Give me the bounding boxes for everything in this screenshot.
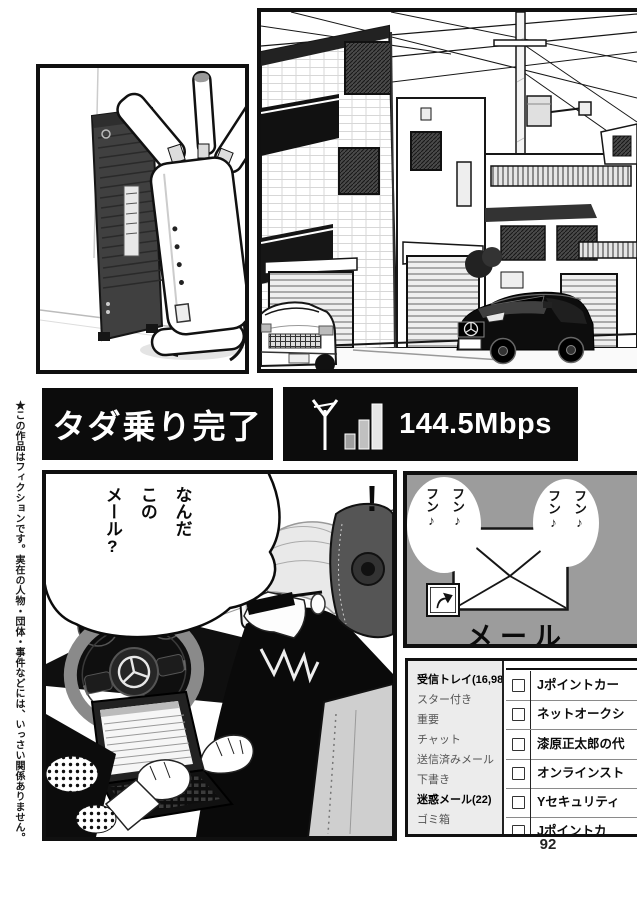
checkbox-icon [512,825,525,837]
humming-text: フン♪ フン♪ [418,487,470,528]
ear [311,594,325,614]
email-row: Jポイントカ [506,817,637,837]
humming-bubble-right: フン♪ フン♪ [533,479,599,567]
humming-bubble-left: フン♪ フン♪ [407,477,481,573]
checkbox-icon [512,796,525,809]
page-number: 92 [528,836,568,853]
checkbox-icon [512,679,525,692]
exclamation-mark: ! [366,478,378,520]
house-center [397,98,485,348]
shortcut-arrow-icon [426,583,460,617]
email-subject: Jポイントカ [537,817,637,837]
email-subject: Yセキュリティ [537,788,637,817]
headrest [330,504,393,637]
sidebar-item-chat: チャット [408,730,502,750]
manga-page: ★この作品はフィクションです。実在の人物・団体・事件などには、いっさい関係ありま… [0,0,637,900]
email-subject: Jポイントカー [537,671,637,700]
sidebar-item-starred: スター付き [408,690,502,710]
disclaimer-text: ★この作品はフィクションです。実在の人物・団体・事件などには、いっさい関係ありま… [11,400,26,850]
email-row: オンラインスト [506,759,637,789]
email-row: Yセキュリティ [506,788,637,818]
email-subject: 漆原正太郎の代 [537,730,637,759]
banner-speed-box: 144.5Mbps [283,387,578,461]
panel-car-interior: なんだ この メール? ! [42,470,397,841]
banner-caption: タダ乗り完了 [42,388,273,460]
antenna-signal-bars-icon [309,396,385,452]
router-body [149,156,245,337]
humming-text: フン♪ フン♪ [540,489,592,530]
panel-mail: メール フン♪ フン♪ フン♪ フン♪ [403,471,637,648]
white-car-illustration [261,302,337,369]
sidebar-item-inbox: 受信トレイ(16,984) [408,670,502,690]
email-subject: ネットオークシ [537,700,637,729]
email-sidebar: 受信トレイ(16,984) スター付き 重要 チャット 送信済みメール 下書き … [408,661,504,834]
email-subject: オンラインスト [537,759,637,788]
sidebar-item-spam: 迷惑メール(22) [408,790,502,810]
checkbox-icon [512,767,525,780]
connection-speed: 144.5Mbps [399,408,552,441]
panel-street [257,8,637,373]
mail-label: メール [407,615,627,648]
panel-router [36,64,249,374]
panel-email-app: 受信トレイ(16,984) スター付き 重要 チャット 送信済みメール 下書き … [405,658,637,837]
sidebar-item-important: 重要 [408,710,502,730]
email-row: ネットオークシ [506,700,637,730]
router-illustration [40,68,245,370]
sidebar-item-drafts: 下書き [408,770,502,790]
checkbox-icon [512,708,525,721]
email-list: Jポイントカー ネットオークシ 漆原正太郎の代 オンラインスト Yセキュリティ … [506,661,637,834]
sidebar-item-sent: 送信済みメール [408,750,502,770]
email-row: Jポイントカー [506,671,637,701]
street-illustration [261,12,637,369]
sidebar-item-trash: ゴミ箱 [408,810,502,830]
banner-title: タダ乗り完了 [53,400,263,448]
email-row: 漆原正太郎の代 [506,730,637,760]
speech-bubble-text: なんだ この メール? [94,486,199,626]
checkbox-icon [512,738,525,751]
